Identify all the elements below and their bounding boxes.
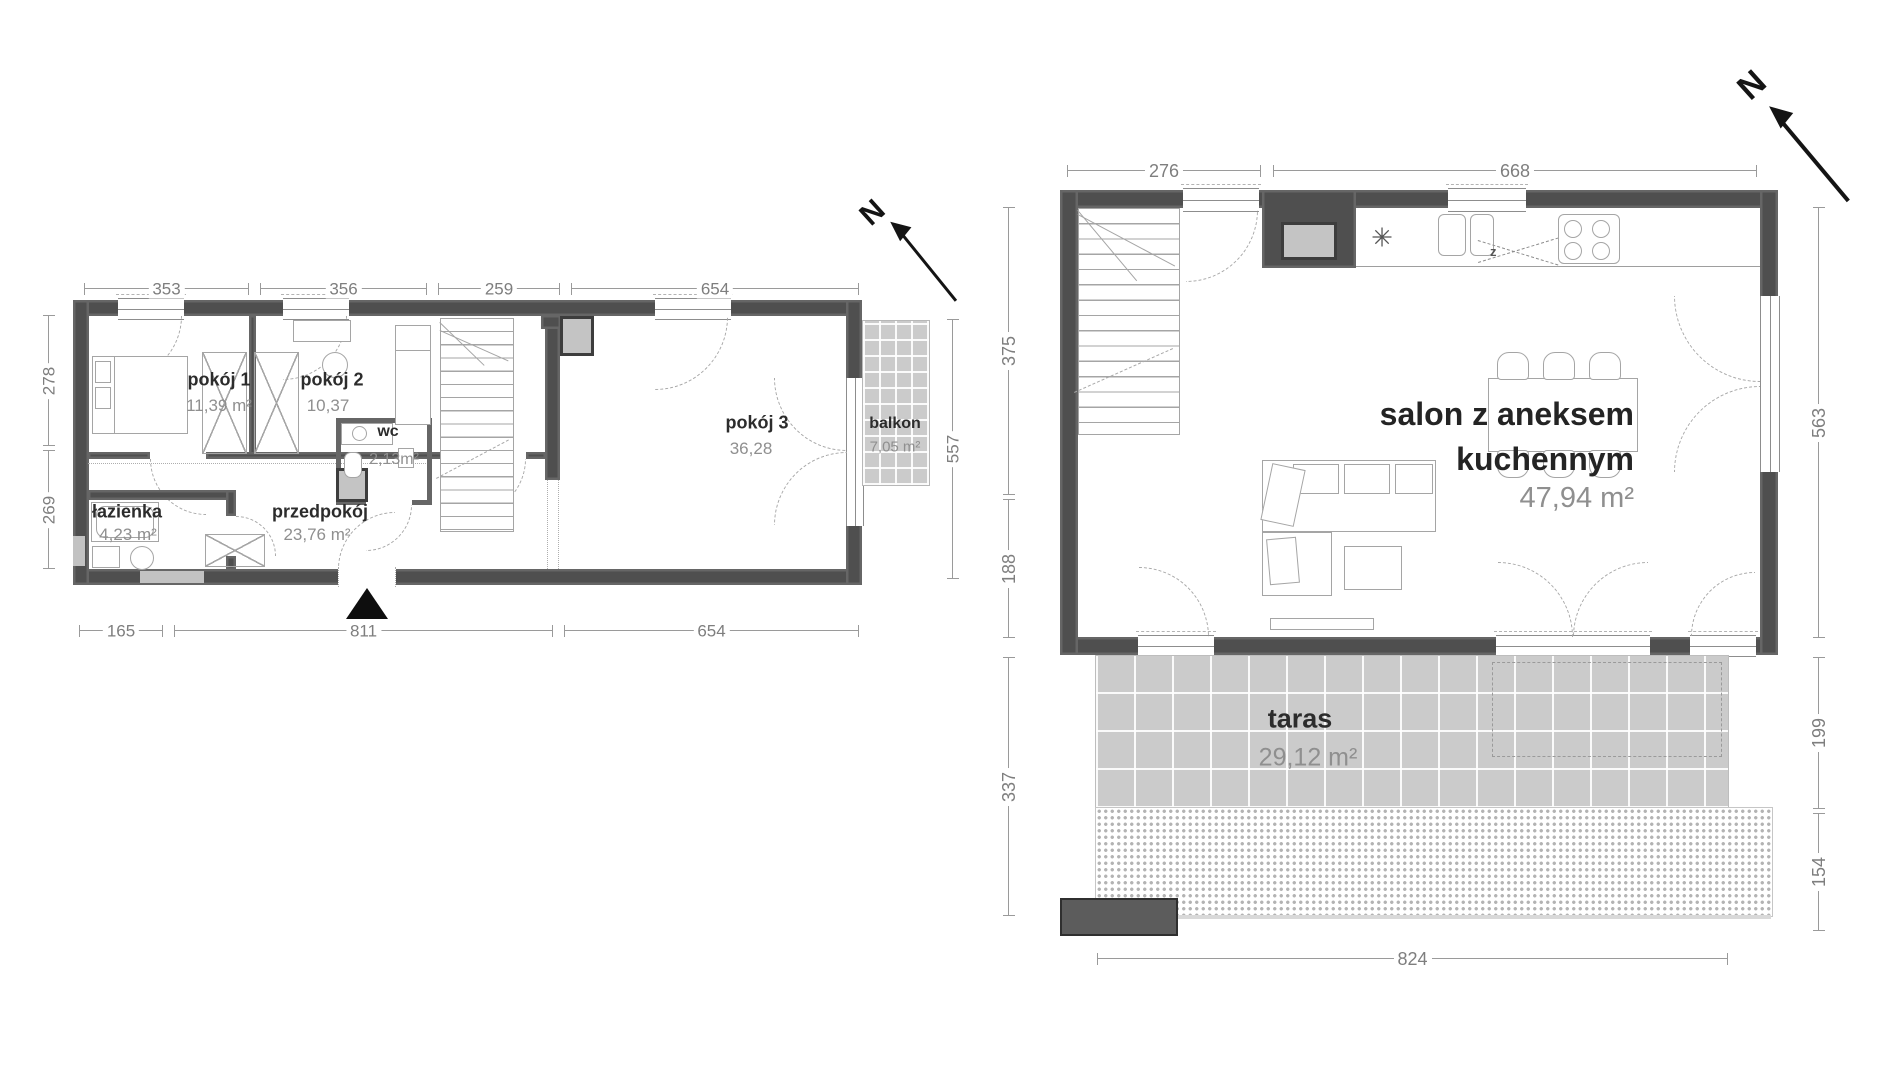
door-jamb: [395, 567, 396, 587]
wall: [1060, 190, 1778, 208]
coffee-table-icon: [1344, 546, 1402, 590]
chair-icon: [1497, 352, 1529, 380]
room-area-salon: 47,94 m²: [1520, 482, 1634, 515]
bed-pillow-line: [114, 356, 115, 434]
bed-icon: [395, 325, 431, 425]
sofa-cushion: [1344, 464, 1390, 494]
pillow: [95, 361, 111, 383]
bed-pillow-line: [395, 350, 431, 351]
wall: [526, 452, 546, 459]
pillow: [95, 387, 111, 409]
north-arrow-shaft: [1780, 120, 1850, 202]
room-label-taras: taras: [1268, 704, 1333, 735]
washbasin-icon: [92, 546, 120, 568]
door-swing-arc: [366, 505, 412, 551]
tv-bench-icon: [1270, 618, 1374, 630]
wall: [88, 490, 236, 500]
room-area-pokoj2: 10,37: [307, 396, 350, 416]
wall: [73, 300, 862, 316]
dim-top-654: 654: [572, 288, 858, 289]
room-area-pokoj1: 11,39 m²: [186, 396, 252, 416]
wall: [88, 452, 150, 459]
dim-top-259: 259: [439, 288, 559, 289]
room-label-wc: wc: [377, 423, 398, 441]
room-area-lazienka: 4,23 m²: [99, 525, 157, 545]
wall: [541, 315, 561, 329]
door-swing-arc: [1186, 210, 1258, 282]
kitchen-counter-line: [1356, 266, 1760, 267]
shaft-box: [1281, 222, 1337, 260]
door-swing-arc: [1691, 572, 1755, 636]
room-label-salon-line1: salon z aneksem: [1380, 396, 1634, 433]
room-area-pokoj3: 36,28: [730, 439, 773, 459]
dim-right-154: 154: [1818, 814, 1819, 930]
room-label-pokoj2: pokój 2: [300, 370, 363, 391]
terrace-french-door-icon: [1496, 635, 1650, 657]
room-label-pokoj1: pokój 1: [187, 370, 250, 391]
balcony-tiles: [862, 320, 930, 486]
opening-line: [547, 480, 548, 569]
heater-icon: ✳: [1371, 223, 1393, 254]
floor-plan-canvas: pokój 1 11,39 m² pokój 2 10,37 wc 2,13m²…: [0, 0, 1900, 1069]
terrace-door-icon: [1138, 635, 1214, 657]
opening-line: [558, 480, 559, 569]
burner: [1592, 242, 1610, 260]
dim-right-563: 563: [1818, 208, 1819, 637]
wardrobe-icon: [205, 534, 265, 567]
dim-right-557: 557: [952, 320, 953, 578]
dim-left-375: 375: [1008, 208, 1009, 494]
room-area-taras: 29,12 m²: [1259, 744, 1358, 773]
room-area-wc: 2,13m²: [369, 451, 419, 469]
wall-niche: [73, 536, 85, 566]
chair-icon: [1543, 352, 1575, 380]
wall: [1060, 190, 1078, 655]
gravel-hatch: [1095, 807, 1773, 917]
door-swing-arc: [1674, 296, 1760, 382]
room-label-lazienka: łazienka: [92, 502, 162, 523]
sofa-cushion: [1395, 464, 1433, 494]
dim-left-278: 278: [48, 316, 49, 445]
toilet-icon: [130, 546, 154, 570]
dim-bottom-654: 654: [565, 630, 858, 631]
toilet-icon: [344, 452, 362, 478]
door-swing-arc: [1498, 562, 1573, 637]
terrace-step: [1060, 898, 1178, 936]
dim-top-276: 276: [1068, 170, 1260, 171]
window-icon: [1183, 188, 1259, 212]
room-area-przedpokoj: 23,76 m²: [283, 525, 350, 545]
entrance-opening: [338, 569, 396, 585]
wall: [412, 500, 432, 505]
dim-top-353: 353: [85, 288, 248, 289]
wall: [427, 418, 432, 505]
staircase: [440, 318, 514, 532]
dim-left-337: 337: [1008, 658, 1009, 915]
terrace-dashed-zone: [1492, 662, 1722, 757]
shaft-box: [560, 316, 594, 356]
burner: [1564, 220, 1582, 238]
dim-left-269: 269: [48, 451, 49, 568]
wardrobe-icon: [254, 352, 299, 454]
dim-right-199: 199: [1818, 658, 1819, 808]
chair-icon: [1589, 352, 1621, 380]
door-swing-arc: [1139, 567, 1209, 637]
door-jamb: [338, 567, 339, 587]
dim-top-356: 356: [261, 288, 426, 289]
wall: [545, 315, 560, 480]
dim-top-668: 668: [1274, 170, 1756, 171]
sofa-cushion: [1266, 537, 1300, 585]
room-label-przedpokoj: przedpokój: [272, 502, 368, 523]
room-label-balkon: balkon: [869, 415, 921, 433]
door-swing-arc: [1573, 562, 1648, 637]
wall-vent: [140, 571, 204, 583]
dim-bottom-165: 165: [80, 630, 162, 631]
room-label-salon-line2: kuchennym: [1456, 441, 1634, 478]
burner: [1564, 242, 1582, 260]
room-area-balkon: 7,05 m²: [870, 439, 921, 456]
wall: [226, 490, 236, 516]
desk-icon: [293, 320, 351, 342]
burner: [1592, 220, 1610, 238]
dim-bottom-811: 811: [175, 630, 552, 631]
north-arrow-head: [1763, 98, 1793, 128]
door-swing-arc: [1674, 386, 1760, 472]
door-swing-arc: [655, 317, 728, 390]
terrace-door-icon: [1690, 635, 1756, 657]
north-arrow-shaft: [901, 233, 957, 302]
room-label-pokoj3: pokój 3: [725, 413, 788, 434]
north-label: N: [1730, 63, 1774, 108]
door-swing-arc: [774, 452, 847, 525]
entrance-arrow-icon: [346, 588, 388, 619]
window-icon: [1448, 188, 1526, 212]
balcony-door-icon: [1760, 296, 1780, 472]
wc-basin: [352, 426, 367, 441]
dim-bottom-824: 824: [1098, 958, 1727, 959]
edge-line: [1095, 915, 1771, 919]
dim-left-188: 188: [1008, 500, 1009, 637]
kitchen-sink: [1438, 214, 1466, 256]
